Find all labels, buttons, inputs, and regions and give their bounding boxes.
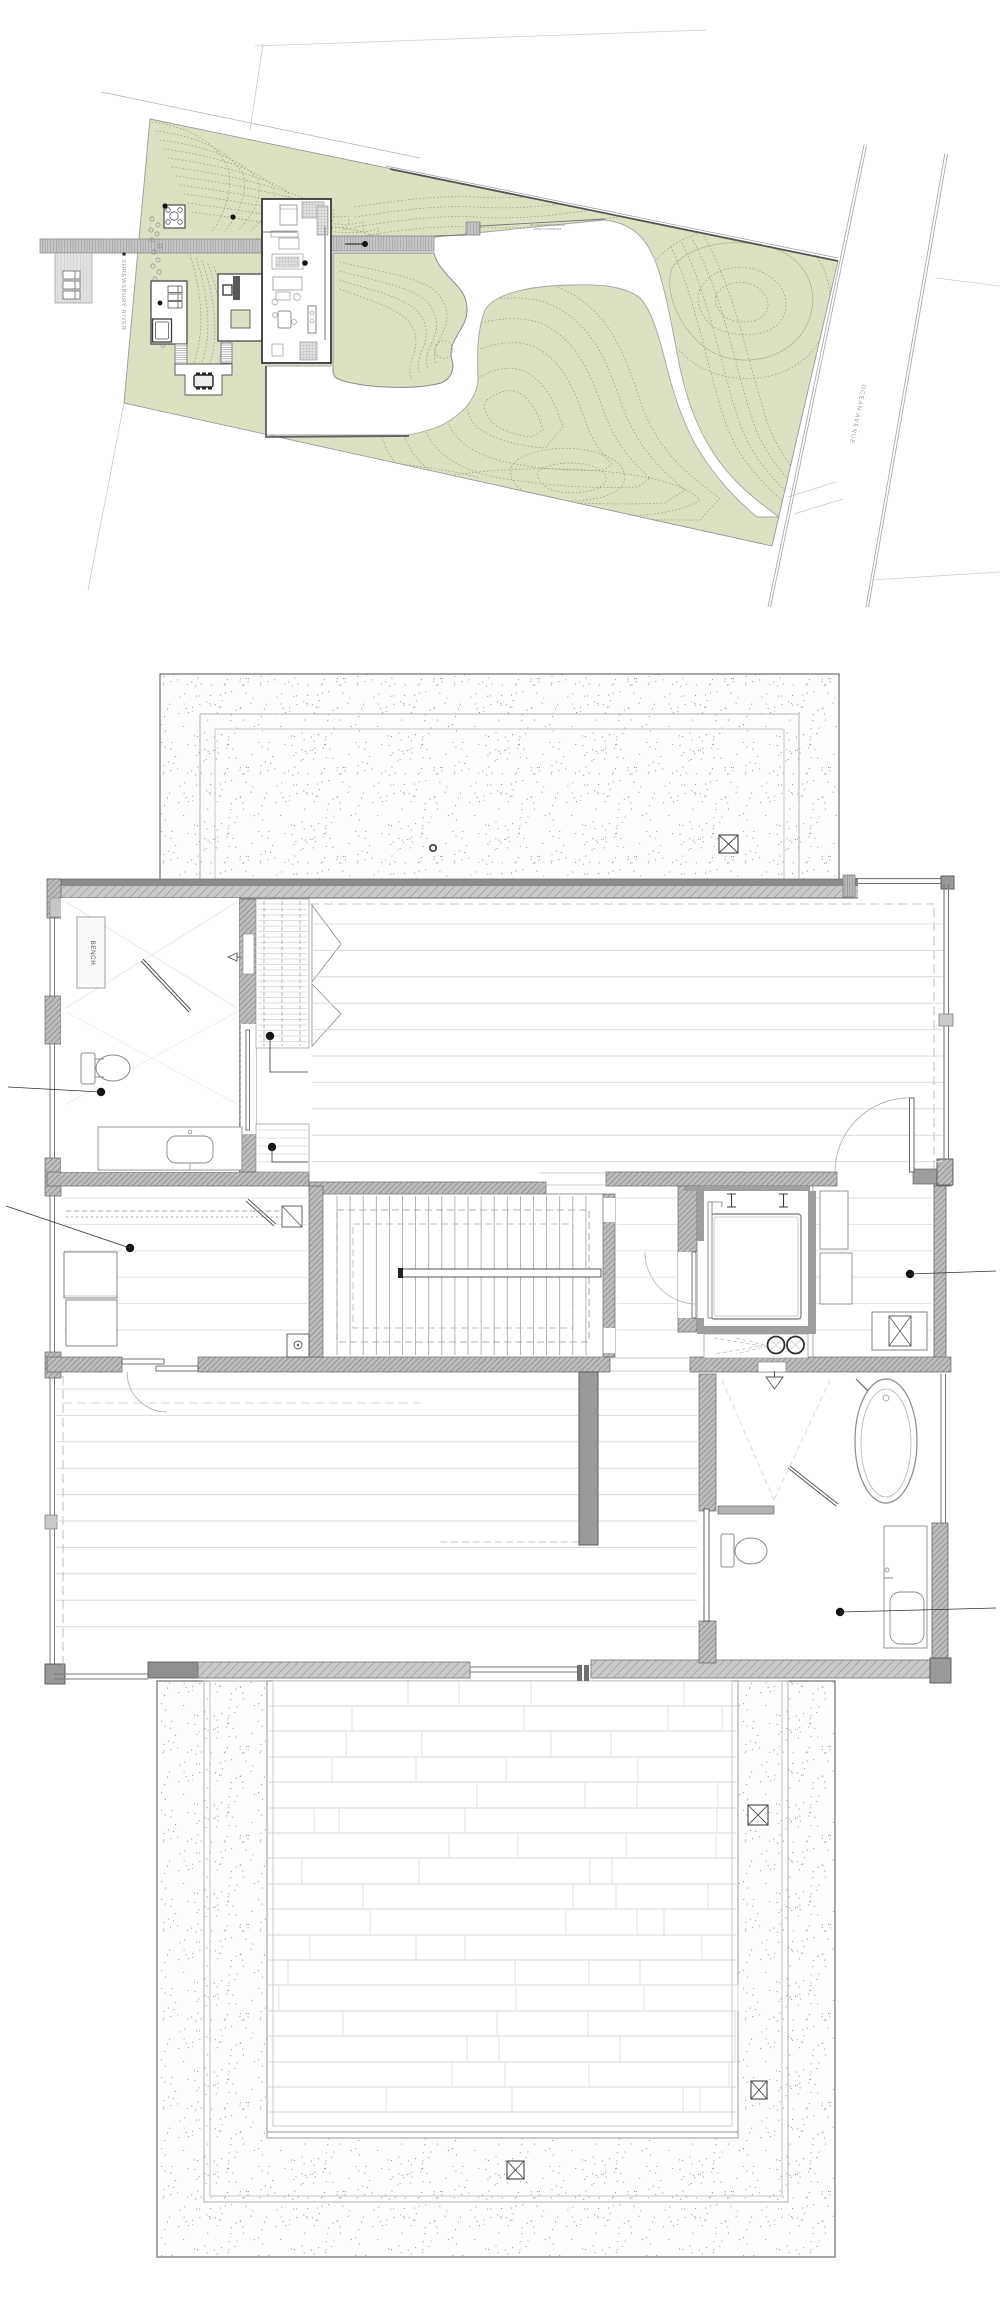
svg-text:BENCH: BENCH [89,941,96,966]
svg-text:SHREWSBURY RIVER: SHREWSBURY RIVER [120,259,126,330]
svg-text:ZONE CONSTRAINT: ZONE CONSTRAINT [533,227,562,231]
